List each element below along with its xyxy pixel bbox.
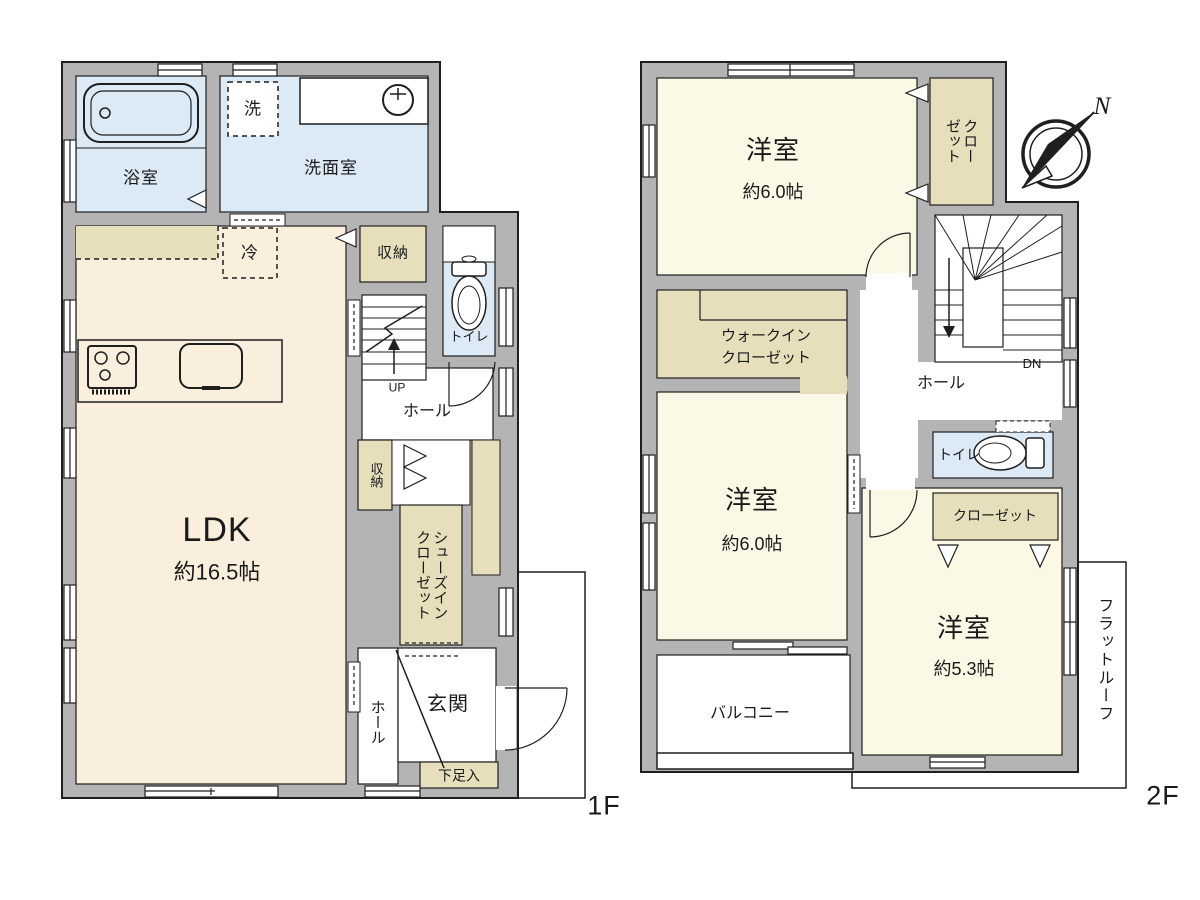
genkan-label: 玄関 (427, 693, 469, 718)
closet1-label: クロー ゼット (944, 119, 979, 164)
bedroom2-sliding-door (848, 455, 860, 513)
ldk-size-label: 約16.5帖 (174, 558, 261, 586)
f1-kitchen-area (76, 226, 218, 259)
bedroom2-label: 洋室 (725, 484, 779, 517)
wic-label-line2: クローゼット (721, 350, 811, 369)
wic-opening (800, 376, 847, 394)
floor-2f-tag: 2F (1146, 781, 1180, 812)
powder-room-label: 洗面室 (304, 157, 358, 178)
wic-label-line1: ウォークイン (721, 328, 811, 347)
entry-door-opening (496, 686, 516, 750)
bedroom2-size-label: 約6.0帖 (721, 533, 782, 556)
compass-icon (1022, 112, 1094, 188)
bedroom3-label: 洋室 (937, 612, 991, 645)
ldk-label: LDK (182, 509, 251, 552)
f2-bedroom1 (657, 78, 917, 275)
bedroom1-label: 洋室 (746, 134, 800, 167)
f1-toilet-label: トイレ (449, 329, 488, 345)
storage-mid-label: 収納 (368, 462, 383, 488)
f1-bathroom (76, 76, 206, 212)
stairs-down-label: DN (1023, 356, 1042, 372)
f2-hall-label: ホール (917, 374, 965, 394)
f2-toilet-shelf (996, 421, 1050, 432)
floor-1f-tag: 1F (587, 791, 621, 822)
stairs-up-label: UP (389, 381, 406, 396)
bedroom1-size-label: 約6.0帖 (742, 181, 803, 204)
porch-outline (512, 572, 585, 798)
f2-toilet-icon (974, 436, 1044, 470)
bath-label: 浴室 (123, 167, 159, 188)
floor-plan-drawing (0, 0, 1200, 900)
shoes-in-closet-label: シューズイン クローゼット (414, 530, 449, 620)
f1-stairs (362, 295, 426, 380)
f1-toilet-icon (452, 256, 486, 330)
flat-roof-label: フラットルーフ (1094, 597, 1112, 723)
f1-hall-label: ホール (403, 402, 451, 422)
closet2-label: クローゼット (953, 507, 1037, 525)
bedroom1-door-opening (866, 273, 912, 292)
f1-side-closet-strip (472, 440, 500, 575)
storage-top-label: 収納 (377, 245, 409, 264)
fridge-label: 冷 (241, 242, 259, 263)
vanity-sink-icon (300, 78, 428, 124)
compass-north-label: N (1094, 93, 1111, 121)
balcony-railing (657, 753, 853, 769)
washer-label: 洗 (244, 98, 262, 119)
floor-plan-canvas: 浴室 洗 洗面室 冷 収納 トイレ UP ホール 収納 LDK 約16.5帖 シ… (0, 0, 1200, 900)
second-floor-plan (641, 62, 1126, 788)
bedroom3-size-label: 約5.3帖 (933, 658, 994, 681)
shoe-box-label: 下足入 (438, 767, 480, 785)
f1-ldk (76, 226, 346, 784)
f2-stairs (935, 215, 1062, 362)
balcony-label: バルコニー (710, 704, 790, 724)
entrance-hall-label: ホール (368, 700, 385, 745)
bedroom3-door-opening (866, 476, 915, 490)
f2-toilet-label: トイレ (938, 446, 980, 464)
